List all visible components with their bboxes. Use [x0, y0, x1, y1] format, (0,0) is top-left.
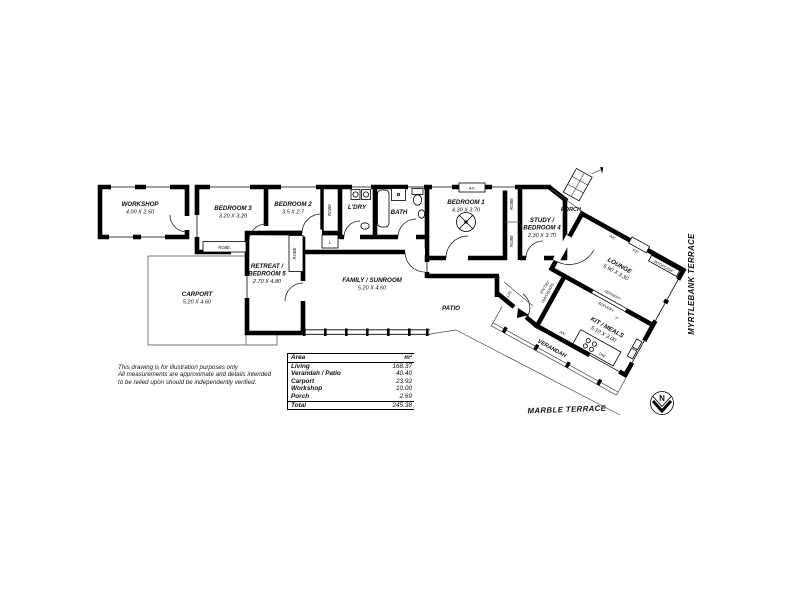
area-table-header: Area m² [288, 353, 414, 363]
study-label2: BEDROOM 4 [523, 225, 561, 232]
porch-label: PORCH [561, 207, 582, 213]
porch-steps-icon [563, 156, 605, 204]
area-table: Area m² Living 168.37 Verandah / Patio 4… [287, 353, 414, 410]
family-label: FAMILY / SUNROOM [342, 277, 402, 284]
lounge-fp-label: F/P [632, 248, 640, 255]
floorplan-canvas: WORKSHOP 4.00 X 2.50 CARPORT 5.20 X 4.60 [0, 0, 800, 600]
bedroom1-label: BEDROOM 1 [447, 199, 485, 206]
room-retreat: RETREAT / BEDROOM 5 2.70 X 4.80 ROBE [248, 236, 303, 286]
bedroom3-label: BEDROOM 3 [214, 205, 252, 212]
bedroom1-robe2-label: ROBE [509, 235, 514, 247]
lin-label: LIN [505, 289, 513, 298]
toilet-icon [412, 189, 423, 195]
bedroom1-robe1-label: ROBE [509, 198, 514, 210]
workshop-door-arc [170, 215, 187, 232]
room-family: FAMILY / SUNROOM 5.20 X 4.60 [342, 277, 402, 292]
disclaimer-line2: All measurements are approximate and det… [118, 371, 271, 378]
table-row: Porch 2.69 [288, 393, 414, 401]
table-row: Verandah / Patio 40.40 [288, 370, 414, 378]
room-bedroom2: BEDROOM 2 3.5 X 2.7 ROBE L [274, 201, 338, 248]
basin-icon [418, 210, 424, 218]
north-arrow: N [651, 392, 674, 415]
retreat-label1: RETREAT / [251, 263, 284, 270]
north-label: N [659, 394, 665, 403]
fridge-label: F [615, 316, 620, 321]
workshop-label: WORKSHOP [121, 201, 159, 208]
room-bedroom3: BEDROOM 3 3.20 X 3.20 ROBE [203, 205, 252, 252]
area-table-total: Total 245.38 [288, 401, 414, 411]
disclaimer-line3: to be relied upon should be independentl… [118, 379, 271, 386]
area-header-unit: m² [404, 354, 412, 362]
room-workshop: WORKSHOP 4.00 X 2.50 [98, 184, 189, 241]
street-myrtlebank-terrace: MYRTLEBANK TERRACE [687, 233, 696, 335]
carport-dims: 5.20 X 4.60 [183, 300, 212, 306]
table-row: Workshop 10.00 [288, 385, 414, 393]
room-bath: BATH [378, 189, 425, 228]
lounge-ac-label: A/C [608, 234, 617, 241]
bedroom2-dims: 3.5 X 2.7 [282, 210, 305, 216]
laundry-label: L'DRY [348, 204, 367, 211]
table-row: Living 168.37 [288, 363, 414, 371]
family-dims: 5.20 X 4.60 [358, 286, 387, 292]
porch-area: PORCH [551, 156, 605, 213]
retreat-label2: BEDROOM 5 [248, 271, 286, 278]
kitchen-ac-label: A/C [558, 330, 567, 337]
family-window-band [303, 329, 430, 337]
floorplan-page: WORKSHOP 4.00 X 2.50 CARPORT 5.20 X 4.60 [0, 0, 800, 600]
bathtub-icon [378, 190, 390, 227]
bedroom2-label: BEDROOM 2 [274, 201, 312, 208]
laundry-trough-icon [361, 223, 369, 229]
disclaimer-line1: This drawing is for illustration purpose… [118, 364, 271, 371]
study-label1: STUDY / [530, 217, 556, 224]
room-study: STUDY / BEDROOM 4 2.30 X 3.70 [523, 217, 561, 239]
street-marble-terrace: MARBLE TERRACE [527, 404, 606, 416]
retreat-dims: 2.70 X 4.80 [252, 279, 282, 285]
bedroom2-robe-label: ROBE [327, 204, 332, 216]
table-row: Carport 23.92 [288, 378, 414, 386]
retreat-robe-label: ROBE [292, 247, 297, 259]
room-bedroom1: BEDROOM 1 4.30 X 3.70 A/C ROBE ROBE [447, 183, 520, 247]
workshop-dims: 4.00 X 2.50 [126, 210, 155, 216]
bedroom1-ac-label: A/C [468, 187, 476, 191]
bedroom3-dims: 3.20 X 3.20 [219, 214, 248, 220]
bath-label: BATH [391, 209, 408, 216]
bedroom3-robe-label: ROBE [218, 245, 230, 250]
carport-label: CARPORT [182, 291, 214, 298]
study-dims: 2.30 X 3.70 [527, 233, 557, 239]
disclaimer-text: This drawing is for illustration purpose… [118, 364, 271, 386]
shower-icon [392, 189, 406, 201]
area-header-label: Area [291, 354, 305, 362]
patio-label: PATIO [442, 305, 460, 312]
room-patio: PATIO [442, 305, 460, 312]
ceiling-fan-icon [457, 213, 476, 232]
